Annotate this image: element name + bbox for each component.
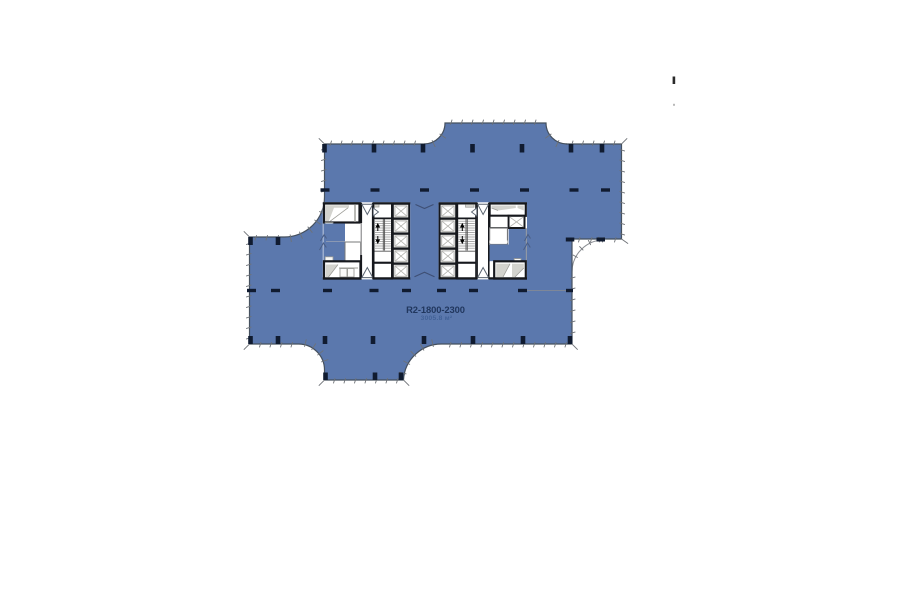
svg-text:R2-1800-2300: R2-1800-2300 [406, 304, 465, 315]
svg-text:3005.8 м²: 3005.8 м² [421, 315, 453, 322]
